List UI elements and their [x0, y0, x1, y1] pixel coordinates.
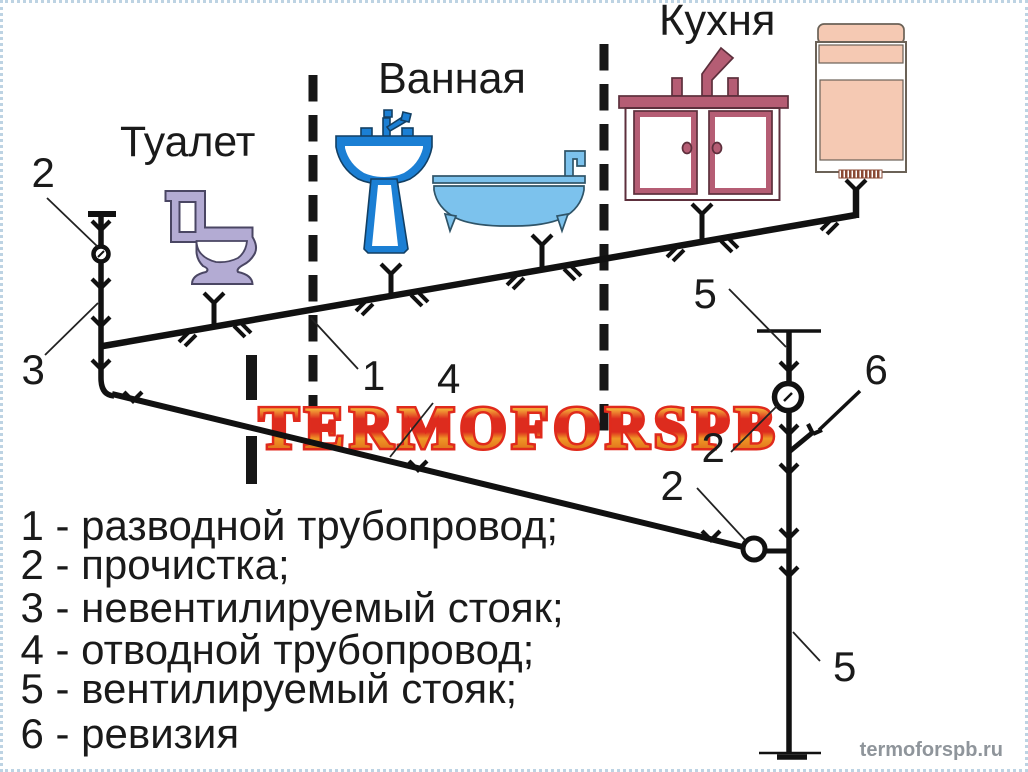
svg-text:6 - ревизия: 6 - ревизия	[21, 710, 240, 757]
svg-text:2: 2	[702, 424, 725, 471]
svg-text:6: 6	[865, 346, 888, 393]
svg-text:2: 2	[32, 149, 55, 196]
svg-text:Туалет: Туалет	[120, 118, 255, 166]
svg-text:Кухня: Кухня	[659, 3, 775, 45]
svg-text:5 - вентилируемый стояк;: 5 - вентилируемый стояк;	[21, 665, 518, 712]
svg-text:5: 5	[694, 270, 717, 317]
svg-text:3: 3	[22, 346, 45, 393]
svg-text:1: 1	[362, 352, 385, 399]
svg-text:Ванная: Ванная	[378, 55, 526, 103]
svg-text:2 - прочистка;: 2 - прочистка;	[21, 541, 290, 588]
svg-text:4: 4	[437, 355, 460, 402]
svg-text:2: 2	[661, 462, 684, 509]
svg-text:5: 5	[833, 643, 856, 690]
svg-text:3 - невентилируемый стояк;: 3 - невентилируемый стояк;	[21, 584, 564, 631]
svg-text:termoforspb.ru: termoforspb.ru	[860, 739, 1003, 761]
